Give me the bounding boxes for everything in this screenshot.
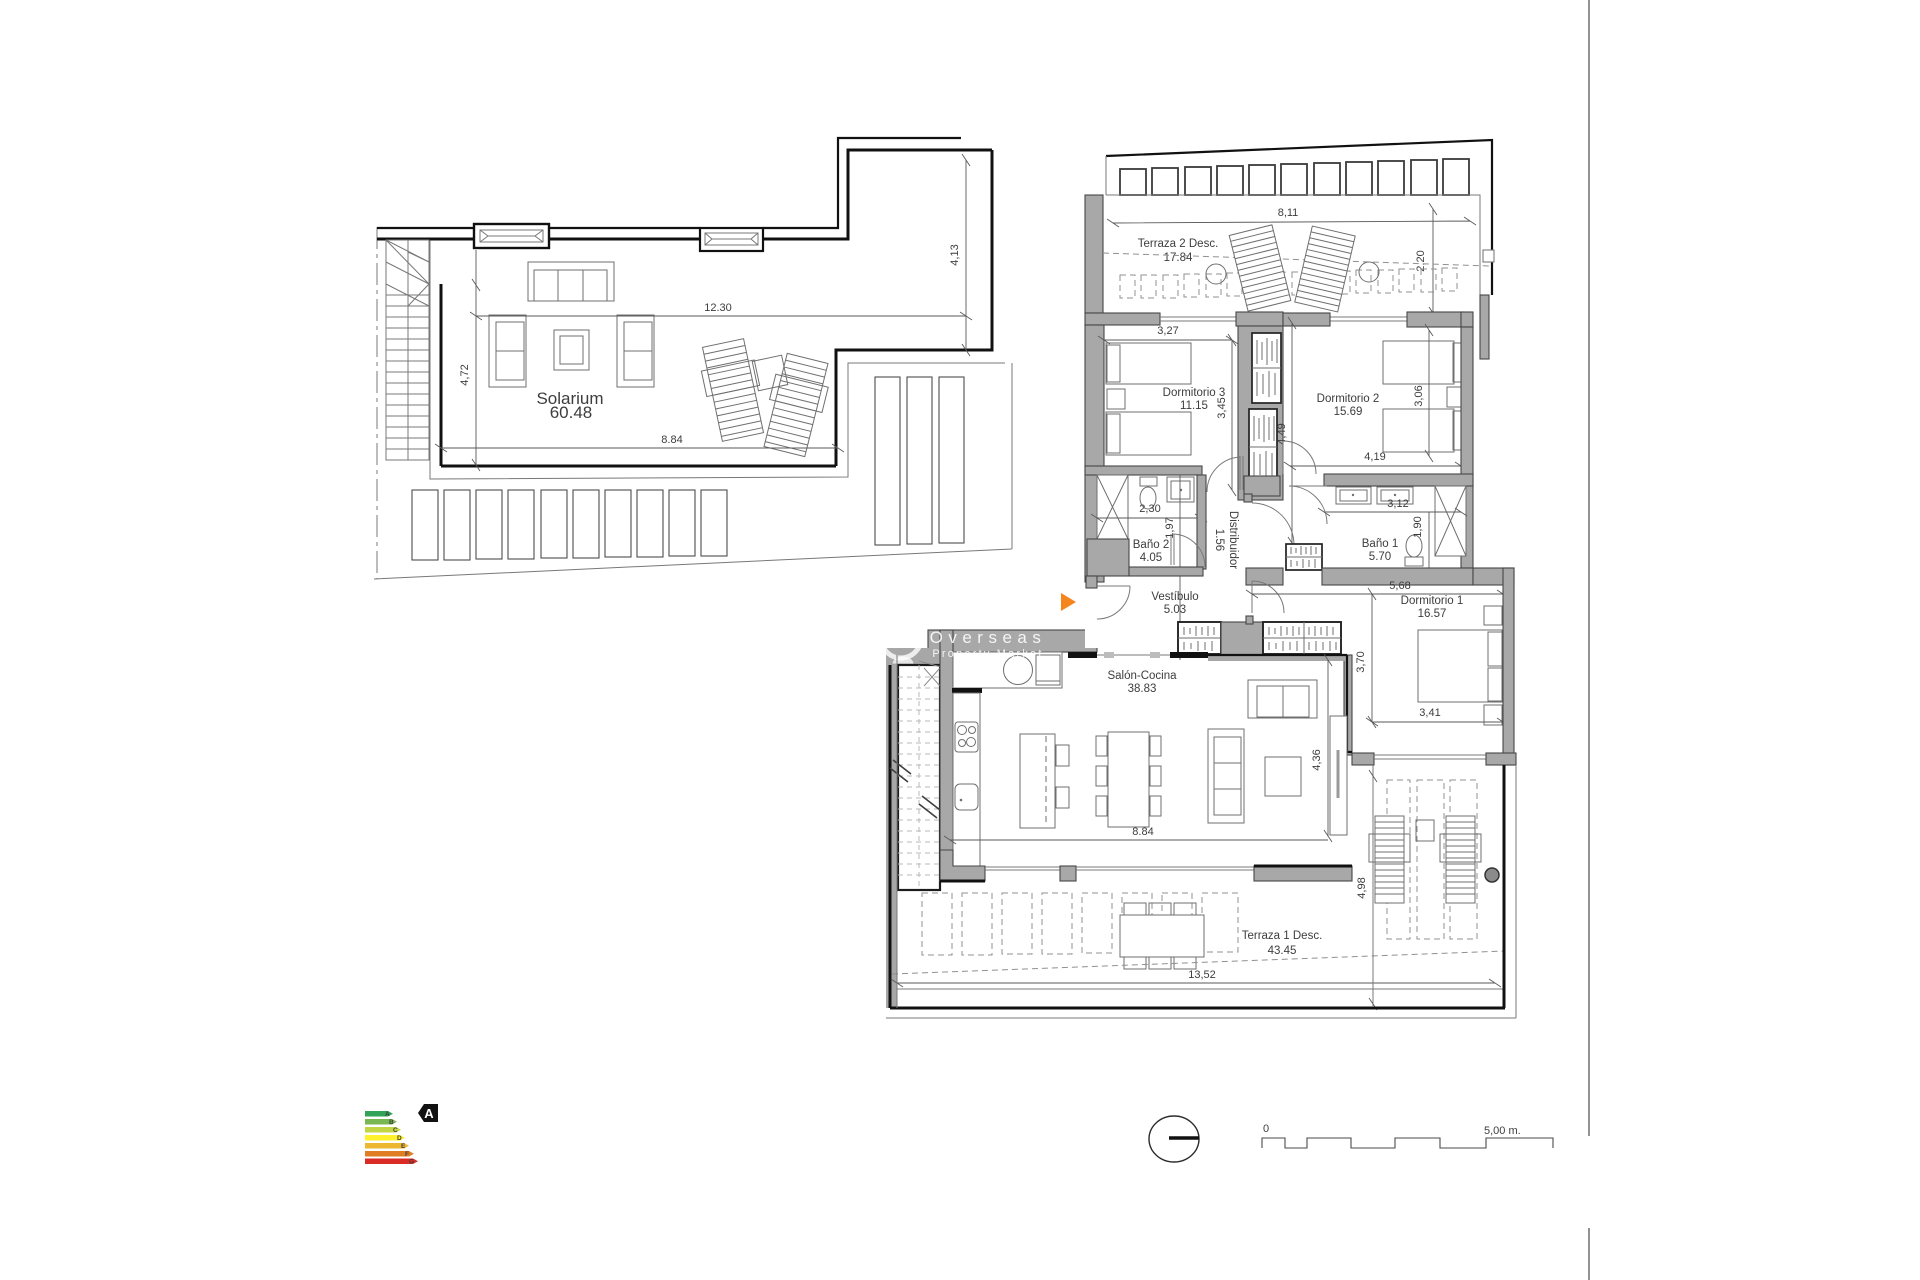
svg-text:16.57: 16.57 (1418, 608, 1447, 620)
svg-text:Terraza 1 Desc.: Terraza 1 Desc. (1242, 930, 1323, 942)
svg-text:17.84: 17.84 (1164, 252, 1193, 264)
svg-text:38.83: 38.83 (1128, 683, 1157, 695)
svg-text:Property Market: Property Market (932, 648, 1043, 660)
svg-text:Terraza 2 Desc.: Terraza 2 Desc. (1138, 238, 1219, 250)
svg-text:3,27: 3,27 (1157, 325, 1178, 337)
svg-text:Dormitorio 3: Dormitorio 3 (1163, 387, 1226, 399)
svg-text:Overseas: Overseas (930, 628, 1047, 647)
svg-text:8,11: 8,11 (1278, 207, 1299, 219)
svg-text:5.03: 5.03 (1164, 604, 1186, 616)
svg-text:11.15: 11.15 (1180, 400, 1208, 412)
svg-text:15.69: 15.69 (1334, 406, 1363, 418)
svg-text:8.84: 8.84 (1132, 826, 1153, 838)
svg-text:8.84: 8.84 (661, 434, 682, 446)
svg-text:43.45: 43.45 (1268, 945, 1297, 957)
svg-text:2,20: 2,20 (1415, 250, 1427, 271)
svg-text:Distribuidor: Distribuidor (1227, 511, 1239, 569)
svg-text:3,12: 3,12 (1387, 498, 1408, 510)
svg-text:Baño 1: Baño 1 (1362, 538, 1398, 550)
svg-text:A: A (385, 1111, 390, 1118)
svg-text:Baño 2: Baño 2 (1133, 539, 1169, 551)
svg-text:D: D (397, 1135, 402, 1142)
svg-text:4,13: 4,13 (949, 244, 961, 265)
svg-text:Vestíbulo: Vestíbulo (1151, 591, 1198, 603)
svg-text:3,06: 3,06 (1413, 385, 1425, 406)
svg-text:C: C (393, 1127, 398, 1134)
svg-text:4,19: 4,19 (1364, 451, 1385, 463)
svg-text:4,72: 4,72 (459, 364, 471, 385)
svg-text:Dormitorio 2: Dormitorio 2 (1317, 393, 1380, 405)
svg-text:2,30: 2,30 (1139, 503, 1160, 515)
svg-text:E: E (401, 1143, 406, 1150)
svg-text:3,45: 3,45 (1216, 397, 1228, 418)
svg-text:13,52: 13,52 (1188, 969, 1216, 981)
svg-text:0: 0 (1263, 1123, 1269, 1135)
svg-text:5.70: 5.70 (1369, 551, 1391, 563)
svg-text:4.05: 4.05 (1140, 552, 1162, 564)
svg-text:G: G (409, 1159, 414, 1166)
svg-text:4,36: 4,36 (1311, 749, 1323, 770)
svg-text:1.56: 1.56 (1213, 529, 1225, 551)
svg-text:3,41: 3,41 (1419, 707, 1440, 719)
svg-text:Dormitorio 1: Dormitorio 1 (1401, 595, 1464, 607)
svg-text:Salón-Cocina: Salón-Cocina (1107, 670, 1177, 682)
svg-text:12.30: 12.30 (704, 302, 732, 314)
svg-text:1,90: 1,90 (1412, 516, 1424, 537)
svg-text:A: A (424, 1106, 434, 1121)
svg-text:60.48: 60.48 (550, 403, 593, 422)
svg-text:F: F (405, 1151, 409, 1158)
svg-text:5,68: 5,68 (1389, 580, 1410, 592)
svg-text:5,00 m.: 5,00 m. (1484, 1125, 1521, 1137)
svg-text:B: B (389, 1119, 394, 1126)
svg-text:3,70: 3,70 (1355, 651, 1367, 672)
svg-text:4,98: 4,98 (1356, 877, 1368, 898)
